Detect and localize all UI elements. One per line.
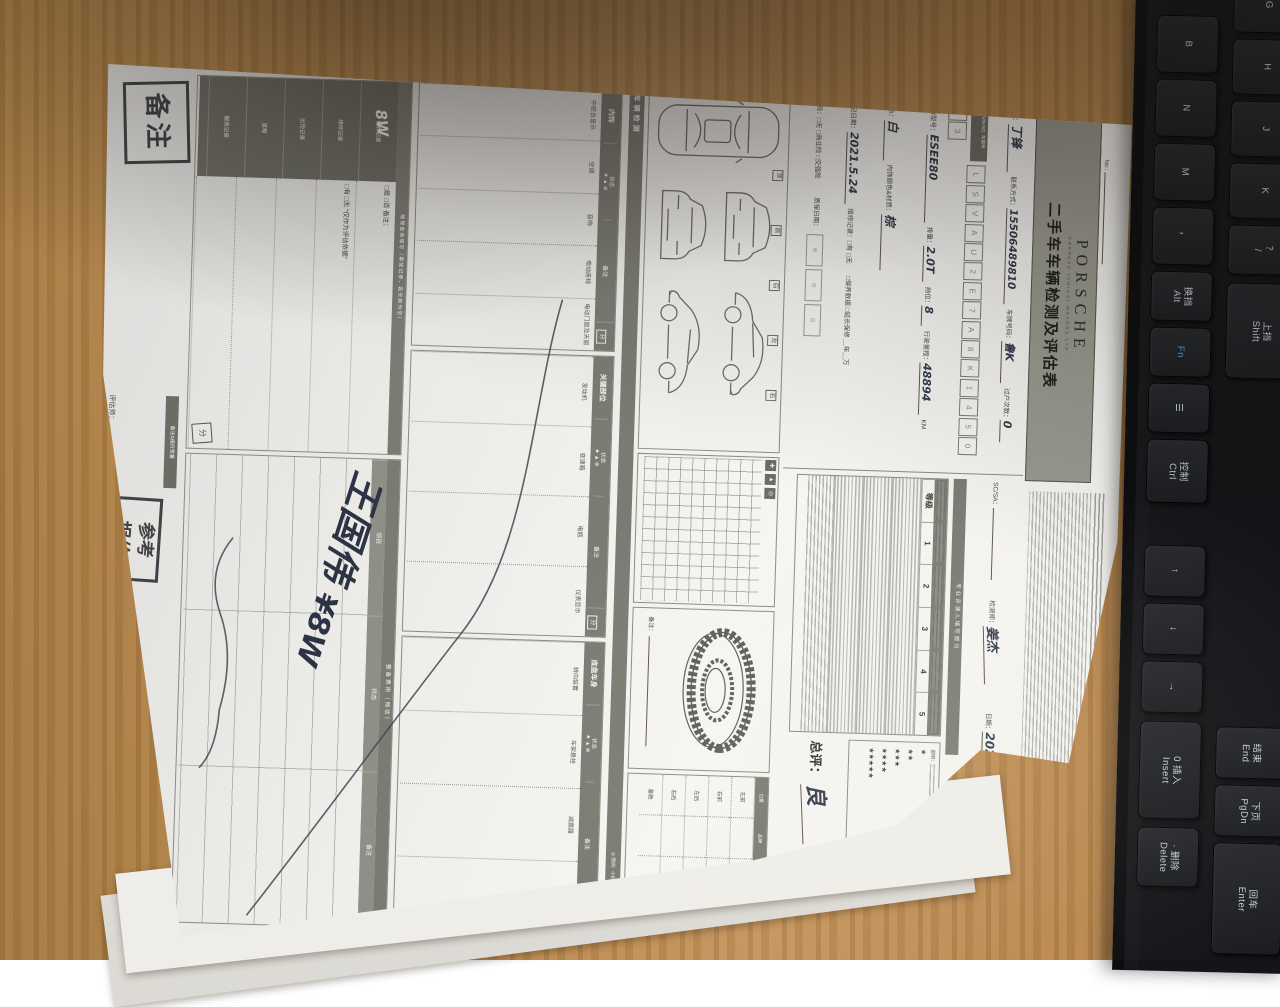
- keyboard-key: ，: [1151, 206, 1214, 265]
- keyboard-key: 下页 PgDn: [1213, 784, 1280, 838]
- keyboard-key: 回车 Enter: [1210, 842, 1280, 956]
- key-label: Fn: [1174, 346, 1186, 358]
- keyboard-key: →: [1140, 660, 1203, 713]
- key-label: K: [1258, 188, 1270, 195]
- keyboard-key: Fn: [1149, 326, 1212, 377]
- key-label: N: [1180, 104, 1192, 112]
- key-label: J: [1260, 126, 1272, 132]
- key-label: 控制 Ctrl: [1166, 461, 1189, 482]
- keyboard-key: M: [1153, 142, 1216, 201]
- keyboard-key: ↑: [1143, 544, 1206, 597]
- key-label: ☰: [1173, 404, 1185, 413]
- keyboard-key: B: [1156, 15, 1219, 74]
- key-label: M: [1179, 168, 1191, 177]
- key-label: 回车 Enter: [1235, 886, 1258, 912]
- key-label: 上挡 Shift: [1249, 320, 1272, 342]
- keyboard-key: H: [1231, 38, 1280, 96]
- key-label: 结束 End: [1239, 743, 1262, 764]
- keyboard-key: ？ /: [1227, 224, 1280, 276]
- keyboard-key: K: [1228, 162, 1280, 220]
- keyboard-key: ↓: [1142, 602, 1205, 655]
- keyboard: GHJK？ /上挡 Shift结束 End下页 PgDn回车 EnterBNM，…: [1112, 0, 1280, 974]
- key-label: B: [1182, 41, 1194, 48]
- key-label: 0 插入 Insert: [1158, 755, 1181, 784]
- keyboard-key: · 删除 Delete: [1136, 826, 1199, 887]
- keyboard-key: N: [1154, 79, 1217, 138]
- key-label: G: [1263, 1, 1275, 9]
- keyboard-key: 换挡 Alt: [1150, 270, 1213, 321]
- keyboard-key: ☰: [1147, 382, 1210, 433]
- key-label: ↓: [1168, 626, 1180, 632]
- keyboard-key: 0 插入 Insert: [1138, 720, 1202, 819]
- keyboard-key: J: [1230, 100, 1280, 158]
- key-label: 下页 PgDn: [1237, 798, 1260, 824]
- key-label: 换挡 Alt: [1170, 286, 1193, 307]
- key-label: →: [1166, 682, 1178, 692]
- key-label: H: [1261, 63, 1273, 71]
- keyboard-key: G: [1233, 0, 1280, 34]
- keyboard-key: 结束 End: [1215, 726, 1280, 780]
- keyboard-key: 控制 Ctrl: [1145, 438, 1209, 503]
- key-label: ，: [1177, 231, 1189, 241]
- keyboard-key: 上挡 Shift: [1225, 282, 1280, 380]
- key-label: ↑: [1169, 568, 1181, 574]
- key-label: · 删除 Delete: [1156, 842, 1180, 873]
- key-label: ？ /: [1251, 245, 1274, 256]
